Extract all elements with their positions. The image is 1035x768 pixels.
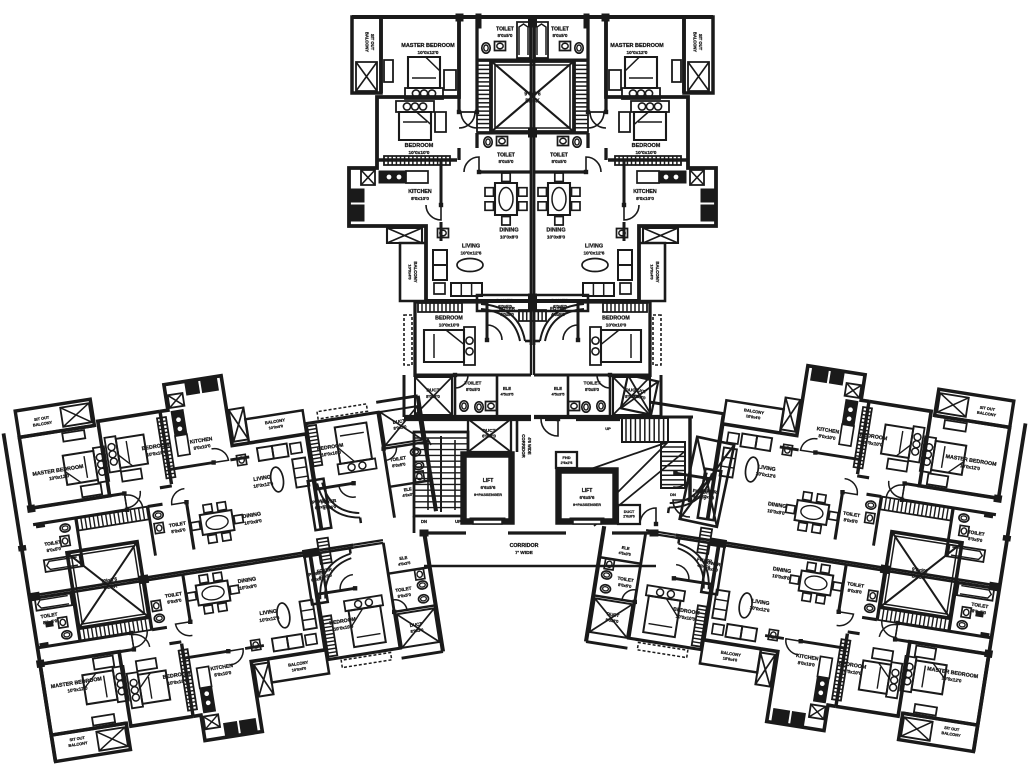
svg-text:10'0x10'0: 10'0x10'0: [606, 322, 627, 327]
svg-text:TOILET: TOILET: [497, 153, 515, 159]
svg-text:BEDROOM: BEDROOM: [435, 315, 463, 321]
svg-text:8'0x5'0: 8'0x5'0: [585, 387, 600, 392]
svg-text:SIT OUT: SIT OUT: [370, 34, 375, 51]
svg-text:8'0x5'0: 8'0x5'0: [553, 33, 568, 38]
svg-text:10'0x10'0: 10'0x10'0: [439, 322, 460, 327]
svg-text:BEDROOM: BEDROOM: [405, 143, 434, 149]
svg-text:BALCONY: BALCONY: [655, 261, 660, 282]
svg-text:8'0x5'0: 8'0x5'0: [498, 33, 513, 38]
svg-text:TOILET: TOILET: [496, 27, 514, 33]
svg-text:DINING: DINING: [546, 227, 565, 233]
svg-text:7' WIDE: 7' WIDE: [515, 550, 533, 556]
svg-text:9+PASSENGER: 9+PASSENGER: [573, 503, 601, 507]
svg-text:DINING: DINING: [499, 227, 518, 233]
svg-text:POWER: POWER: [551, 298, 569, 303]
svg-text:BALCONY: BALCONY: [413, 261, 418, 282]
svg-text:DUCT: DUCT: [482, 428, 495, 433]
svg-text:UP: UP: [605, 426, 611, 431]
svg-text:6'6x5'6: 6'6x5'6: [580, 495, 595, 500]
svg-text:MASTER BEDROOM: MASTER BEDROOM: [610, 43, 664, 49]
svg-text:BEDROOM: BEDROOM: [632, 143, 661, 149]
svg-text:LIVING: LIVING: [462, 243, 480, 249]
svg-text:10'0x8'0: 10'0x8'0: [500, 235, 519, 241]
svg-text:FHD: FHD: [562, 455, 570, 460]
svg-text:LIFT: LIFT: [483, 478, 494, 484]
svg-text:8'0x10'0: 8'0x10'0: [636, 196, 654, 201]
svg-text:SIT OUT: SIT OUT: [698, 34, 703, 51]
svg-text:4'6 WIDE: 4'6 WIDE: [527, 437, 532, 455]
svg-text:10'0x12'0: 10'0x12'0: [627, 50, 648, 56]
svg-text:CORRIDOR: CORRIDOR: [521, 434, 526, 458]
svg-text:10'0x12'6: 10'0x12'6: [584, 251, 605, 257]
svg-text:MASTER BEDROOM: MASTER BEDROOM: [401, 43, 455, 49]
svg-text:BEDROOM: BEDROOM: [602, 315, 630, 321]
svg-text:8'0x5'0: 8'0x5'0: [552, 159, 567, 164]
svg-text:DN: DN: [670, 492, 676, 497]
svg-text:KITCHEN: KITCHEN: [633, 189, 657, 195]
svg-text:8'0x3'0: 8'0x3'0: [426, 394, 440, 399]
svg-text:4'5x3'5: 4'5x3'5: [500, 392, 514, 397]
svg-text:BALCONY: BALCONY: [692, 32, 697, 53]
svg-text:UP: UP: [455, 519, 461, 524]
svg-text:CORRIDOR: CORRIDOR: [510, 543, 539, 549]
svg-text:10'0x12'0: 10'0x12'0: [418, 50, 439, 56]
svg-text:BALCONY: BALCONY: [364, 32, 369, 53]
svg-text:ELE: ELE: [503, 386, 511, 391]
svg-text:2'0x6'6: 2'0x6'6: [623, 515, 634, 519]
svg-text:2'6x2'6: 2'6x2'6: [561, 461, 573, 465]
svg-text:10'0x4'0: 10'0x4'0: [407, 264, 412, 280]
svg-text:KITCHEN: KITCHEN: [408, 189, 432, 195]
svg-text:6'0x2'0: 6'0x2'0: [482, 434, 496, 439]
svg-text:8'0x5'0: 8'0x5'0: [466, 387, 481, 392]
svg-text:TOILET: TOILET: [551, 27, 569, 33]
svg-text:POWER: POWER: [496, 298, 514, 303]
svg-text:LIVING: LIVING: [585, 243, 603, 249]
svg-text:10'0x4'0: 10'0x4'0: [649, 264, 654, 280]
svg-text:DN: DN: [421, 519, 427, 524]
svg-text:TOILET: TOILET: [550, 153, 568, 159]
svg-text:8'0x10'0: 8'0x10'0: [411, 196, 429, 201]
svg-text:DUCT: DUCT: [624, 510, 635, 514]
svg-text:10'0x12'6: 10'0x12'6: [461, 251, 482, 257]
svg-text:LIFT: LIFT: [582, 488, 593, 494]
svg-text:10'0x8'0: 10'0x8'0: [547, 235, 566, 241]
svg-text:DUCT: DUCT: [426, 388, 439, 393]
svg-text:9+PASSENGER: 9+PASSENGER: [474, 493, 502, 497]
svg-text:6'6x5'6: 6'6x5'6: [481, 485, 496, 490]
svg-text:8'0x5'0: 8'0x5'0: [499, 159, 514, 164]
svg-text:4'5x3'5: 4'5x3'5: [551, 392, 565, 397]
svg-text:ELE: ELE: [554, 386, 562, 391]
